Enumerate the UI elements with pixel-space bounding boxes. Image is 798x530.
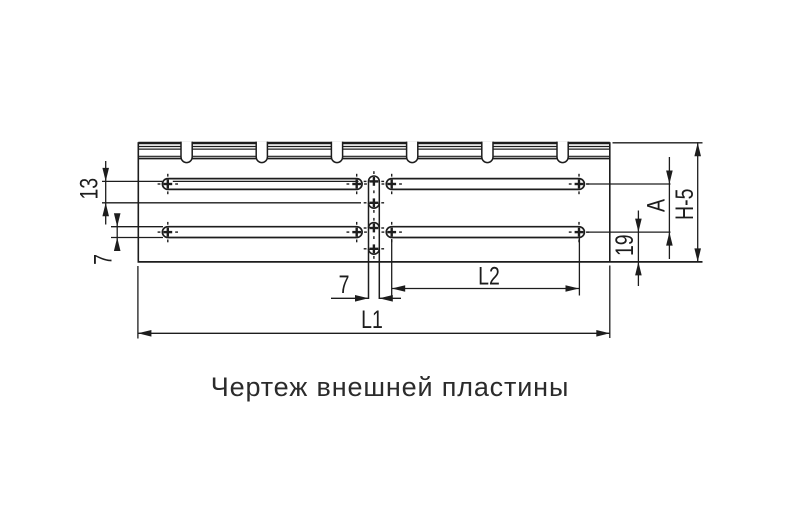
svg-text:L2: L2 xyxy=(478,262,500,290)
svg-text:H-5: H-5 xyxy=(671,189,699,220)
svg-text:L1: L1 xyxy=(361,305,383,333)
svg-text:19: 19 xyxy=(611,234,639,256)
svg-text:7: 7 xyxy=(89,254,117,265)
svg-text:A: A xyxy=(642,199,670,212)
svg-text:13: 13 xyxy=(75,178,103,200)
svg-text:7: 7 xyxy=(339,271,350,299)
